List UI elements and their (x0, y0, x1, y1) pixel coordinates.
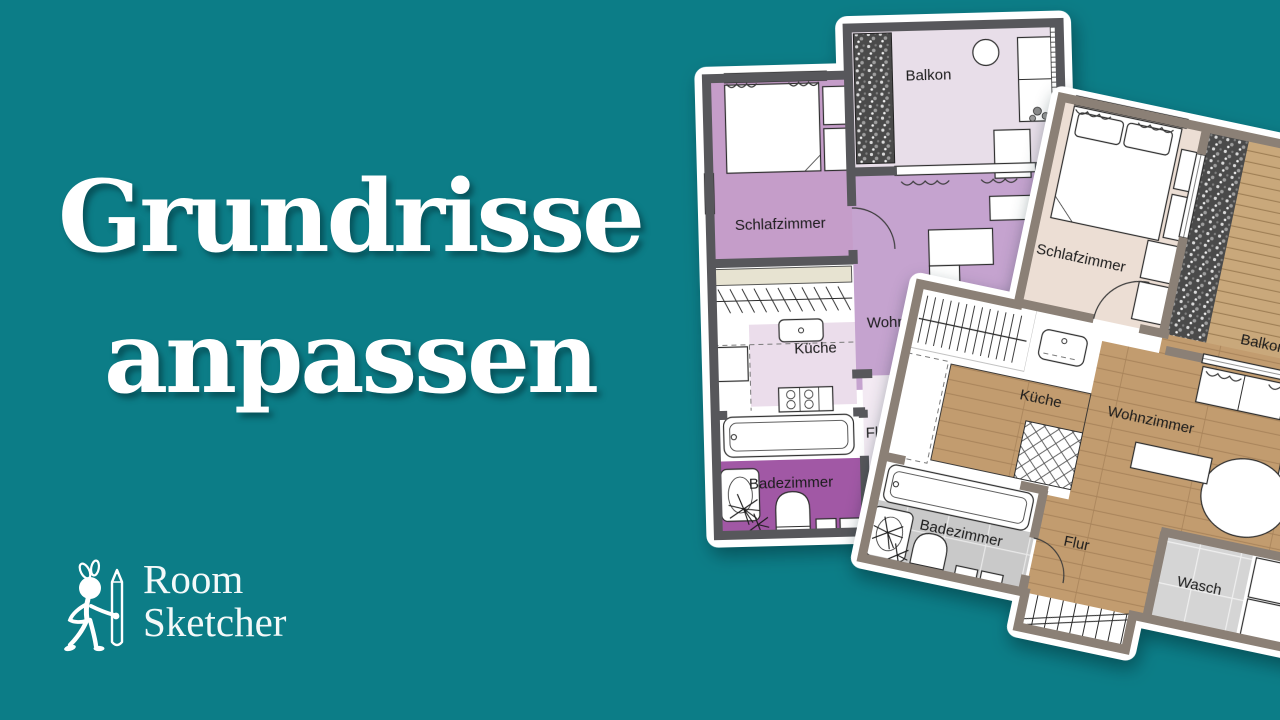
toilet-a (775, 491, 810, 532)
logo-word-sketcher: Sketcher (143, 601, 286, 644)
room-label-balkon-a: Balkon (905, 66, 951, 84)
roomsketcher-wordmark: Room Sketcher (143, 558, 286, 645)
room-label-badezimmer-a: Badezimmer (749, 474, 834, 493)
headline-line-1: Grundrisse (0, 168, 700, 267)
hero-banner: Grundrisse anpassen (0, 0, 1280, 720)
headline-line-2: anpassen (0, 309, 700, 408)
balkon-gravel-a (853, 33, 894, 164)
balkon-table-a (973, 39, 1000, 66)
bathtub-a (723, 414, 854, 457)
roomsketcher-mascot-icon (62, 558, 128, 658)
room-label-kueche-a: Küche (794, 339, 837, 357)
roomsketcher-logo: Room Sketcher (62, 558, 286, 658)
cooktop-a (779, 387, 834, 412)
room-label-schlafzimmer-a: Schlafzimmer (735, 215, 826, 234)
cooktop-tile-b (1014, 421, 1083, 490)
logo-word-room: Room (143, 558, 286, 601)
kitchen-sink-a (779, 319, 824, 342)
page-title: Grundrisse anpassen (0, 168, 700, 408)
fridge-a (715, 347, 748, 382)
